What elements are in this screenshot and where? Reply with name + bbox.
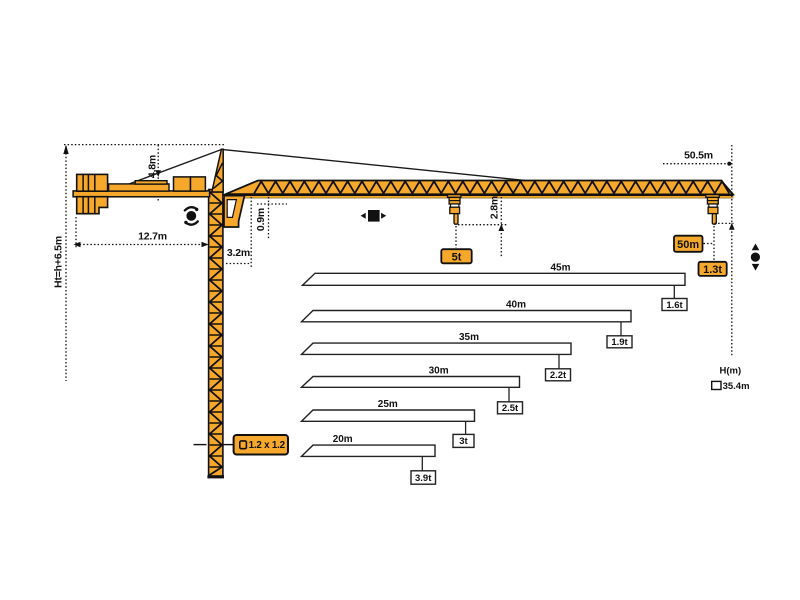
svg-text:H(m): H(m) — [719, 366, 741, 377]
svg-text:40m: 40m — [506, 299, 526, 310]
svg-text:35.4m: 35.4m — [723, 381, 750, 392]
svg-text:3.2m: 3.2m — [227, 247, 250, 259]
svg-text:5t: 5t — [452, 251, 462, 263]
svg-text:12.7m: 12.7m — [138, 231, 167, 243]
svg-text:45m: 45m — [550, 263, 570, 274]
svg-text:Ht=h+6.5m: Ht=h+6.5m — [53, 236, 65, 288]
svg-text:35m: 35m — [459, 332, 479, 343]
svg-text:25m: 25m — [378, 399, 398, 410]
svg-text:3t: 3t — [459, 436, 468, 447]
svg-text:2.8m: 2.8m — [489, 196, 501, 219]
svg-text:20m: 20m — [333, 434, 353, 445]
svg-text:2.2t: 2.2t — [550, 370, 567, 381]
svg-text:50m: 50m — [677, 239, 699, 251]
svg-text:1.6t: 1.6t — [666, 300, 683, 311]
svg-text:2.5t: 2.5t — [502, 403, 519, 414]
svg-text:0.9m: 0.9m — [255, 208, 267, 231]
svg-text:1.2 x 1.2: 1.2 x 1.2 — [249, 440, 286, 451]
svg-text:3.9t: 3.9t — [415, 473, 432, 484]
svg-text:50.5m: 50.5m — [684, 149, 713, 161]
svg-text:30m: 30m — [429, 366, 449, 377]
svg-text:1.3t: 1.3t — [703, 264, 722, 276]
svg-text:1.9t: 1.9t — [611, 337, 628, 348]
